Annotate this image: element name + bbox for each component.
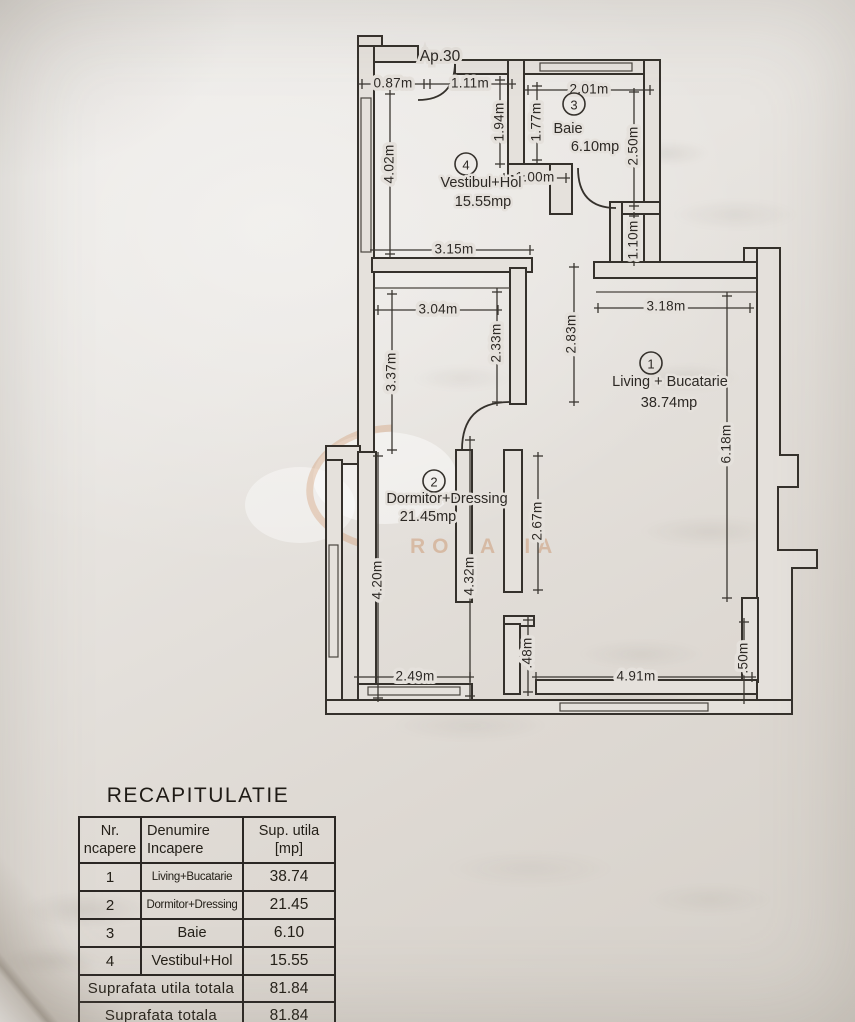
dimension: 1.11m	[426, 76, 516, 91]
dimension-label: 4.91m	[616, 669, 655, 684]
scanned-floor-plan-page: ROMANIA	[0, 0, 855, 1022]
room-number-cell: 1	[79, 863, 141, 891]
table-row: 2Dormitor+Dressing21.45	[79, 891, 335, 919]
room-name-cell: Baie	[141, 919, 243, 947]
dimension: 2.83m	[564, 263, 579, 406]
dimension-label: 2.50m	[626, 126, 641, 165]
header-nr: Nr. ncapere	[79, 817, 141, 863]
room-number-cell: 2	[79, 891, 141, 919]
total-label-cell: Suprafata utila totala	[79, 975, 243, 1002]
wall	[594, 262, 762, 278]
recap-section: RECAPITULATIE Nr. ncapere Denumire Incap…	[78, 784, 334, 1022]
dimension-label: 1.77m	[529, 102, 544, 141]
dimension-label: 0.87m	[373, 76, 412, 91]
dimension-label: 2.49m	[395, 669, 434, 684]
dimension-label: .48m	[520, 637, 535, 668]
area-value-cell: 21.45	[243, 891, 335, 919]
header-text: Sup. utila	[259, 823, 319, 839]
room-name: Living + Bucatarie	[612, 374, 728, 390]
wall	[504, 624, 520, 694]
room-area: 38.74mp	[641, 395, 697, 411]
room-number-cell: 4	[79, 947, 141, 975]
dimension: 6.18m	[719, 292, 734, 602]
header-text: Denumire	[147, 823, 210, 839]
dimension-label: 2.83m	[564, 314, 579, 353]
dimension: 4.02m	[382, 90, 397, 258]
room-number: 3	[570, 98, 577, 113]
room-area: 15.55mp	[455, 194, 511, 210]
recap-title: RECAPITULATIE	[70, 784, 326, 808]
table-row: 4Vestibul+Hol15.55	[79, 947, 335, 975]
room-name: Vestibul+Hol	[440, 175, 521, 191]
wall	[372, 258, 532, 272]
header-denumire: Denumire Incapere	[141, 817, 243, 863]
dimension-label: 4.02m	[382, 144, 397, 183]
dimension-label: 6.18m	[719, 424, 734, 463]
dimension-label: 2.67m	[530, 501, 545, 540]
total-row: Suprafata utila totala81.84	[79, 975, 335, 1002]
wall	[358, 46, 374, 452]
dimension-label: 2.33m	[489, 323, 504, 362]
room-name-cell: Living+Bucatarie	[141, 863, 243, 891]
living-door-arc	[462, 402, 510, 450]
recap-table: Nr. ncapere Denumire Incapere Sup. utila…	[78, 816, 336, 1022]
header-text: Incapere	[147, 841, 203, 857]
header-text: Nr.	[101, 823, 120, 839]
room-label-group: 3Baie6.10mp	[553, 93, 619, 155]
area-value-cell: 6.10	[243, 919, 335, 947]
dimension-label: 3.04m	[418, 302, 457, 317]
room-name: Dormitor+Dressing	[386, 491, 507, 507]
dimension: 2.50m	[626, 88, 641, 210]
dimension: 1.94m	[492, 76, 507, 168]
table-row: 1Living+Bucatarie38.74	[79, 863, 335, 891]
wall	[508, 60, 524, 166]
wall	[510, 268, 526, 404]
wall	[326, 460, 342, 714]
dimension: 1.77m	[529, 82, 544, 164]
dimension: .48m	[520, 616, 535, 696]
room-name: Baie	[553, 121, 582, 137]
room-label-group: 1Living + Bucatarie38.74mp	[612, 352, 728, 411]
dimension: 1.10m	[626, 212, 641, 266]
dimension: 3.18m	[594, 299, 754, 314]
dimension-label: 3.18m	[646, 299, 685, 314]
wall	[326, 700, 792, 714]
room-area: 21.45mp	[400, 509, 456, 525]
header-suprafata: Sup. utila [mp]	[243, 817, 335, 863]
dimension-label: 1.94m	[492, 102, 507, 141]
table-header-row: Nr. ncapere Denumire Incapere Sup. utila…	[79, 817, 335, 863]
dimension-label: 3.15m	[434, 242, 473, 257]
dimension-label: 1.11m	[451, 76, 489, 91]
total-value-cell: 81.84	[243, 975, 335, 1002]
room-area: 6.10mp	[571, 139, 619, 155]
walls	[326, 36, 817, 714]
room-number: 4	[462, 158, 469, 173]
dimension-label: .50m	[736, 642, 751, 673]
dimension: 3.04m	[374, 302, 502, 317]
dimension: 2.67m	[530, 452, 545, 594]
header-text: ncapere	[84, 841, 136, 857]
room-number: 2	[430, 475, 437, 490]
total-value-cell: 81.84	[243, 1002, 335, 1022]
dimension-label: 4.32m	[462, 556, 477, 595]
header-text: [mp]	[275, 841, 303, 857]
room-name-cell: Dormitor+Dressing	[141, 891, 243, 919]
dimension: 2.33m	[489, 288, 504, 406]
room-name-cell: Vestibul+Hol	[141, 947, 243, 975]
wall-right-band	[757, 248, 817, 714]
room-number: 1	[647, 357, 654, 372]
wall	[504, 450, 522, 592]
room-number-cell: 3	[79, 919, 141, 947]
dimension-label: 4.20m	[370, 560, 385, 599]
dimension-label: 3.37m	[384, 352, 399, 391]
area-value-cell: 15.55	[243, 947, 335, 975]
total-label-cell: Suprafata totala	[79, 1002, 243, 1022]
area-value-cell: 38.74	[243, 863, 335, 891]
dimension-label: 2.01m	[569, 82, 608, 97]
table-row: 3Baie6.10	[79, 919, 335, 947]
apartment-label: Ap.30	[420, 48, 461, 65]
dimension-label: 1.10m	[626, 220, 641, 259]
total-row: Suprafata totala81.84	[79, 1002, 335, 1022]
wall	[455, 60, 660, 74]
